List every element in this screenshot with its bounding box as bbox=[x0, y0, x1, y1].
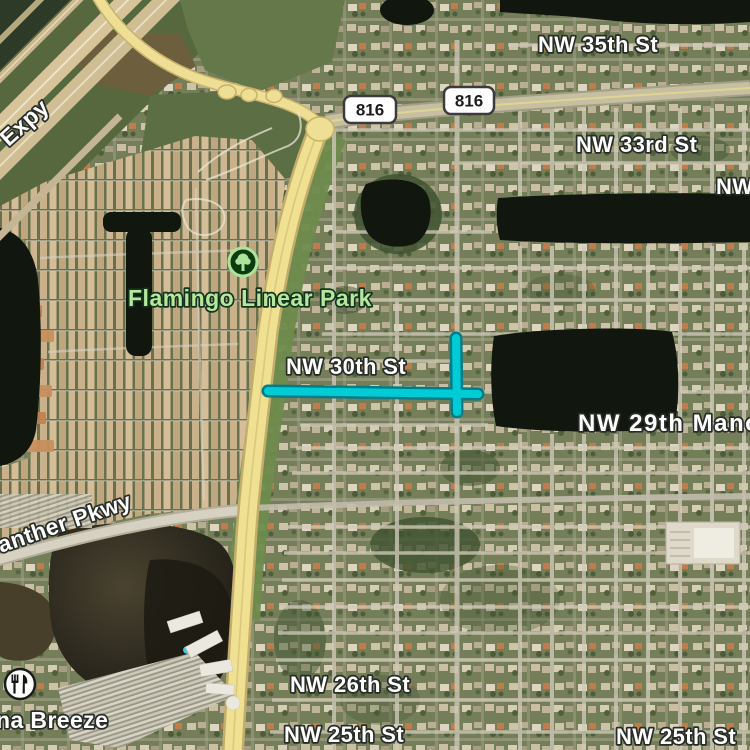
label-flamingo-linear-park[interactable]: Flamingo Linear Park bbox=[128, 285, 372, 311]
route-shield-number: 816 bbox=[356, 101, 384, 120]
label-nw-edge-partial: NW bbox=[716, 174, 750, 199]
label-nw-29th-manor: NW 29th Manor bbox=[578, 410, 750, 437]
label-nw-25th-st-right: NW 25th St bbox=[616, 724, 736, 749]
label-nw-26th-st: NW 26th St bbox=[290, 672, 410, 697]
map-canvas[interactable]: 816 816 Expy NW 35th St NW 33rd St NW F bbox=[0, 0, 750, 750]
route-shield-816-right: 816 bbox=[444, 87, 494, 114]
label-nw-30th-st: NW 30th St bbox=[286, 354, 406, 379]
restaurant-poi-icon[interactable] bbox=[5, 669, 35, 699]
park-poi-icon[interactable] bbox=[229, 248, 257, 276]
label-breeze-partial: na Breeze bbox=[0, 707, 108, 733]
label-nw-25th-st-left: NW 25th St bbox=[284, 722, 404, 747]
route-shield-816-left: 816 bbox=[344, 96, 396, 123]
label-nw-35th-st: NW 35th St bbox=[538, 32, 658, 57]
map-viewport[interactable]: 816 816 Expy NW 35th St NW 33rd St NW F bbox=[0, 0, 750, 750]
label-nw-33rd-st: NW 33rd St bbox=[576, 132, 698, 157]
route-shield-number: 816 bbox=[455, 92, 483, 111]
